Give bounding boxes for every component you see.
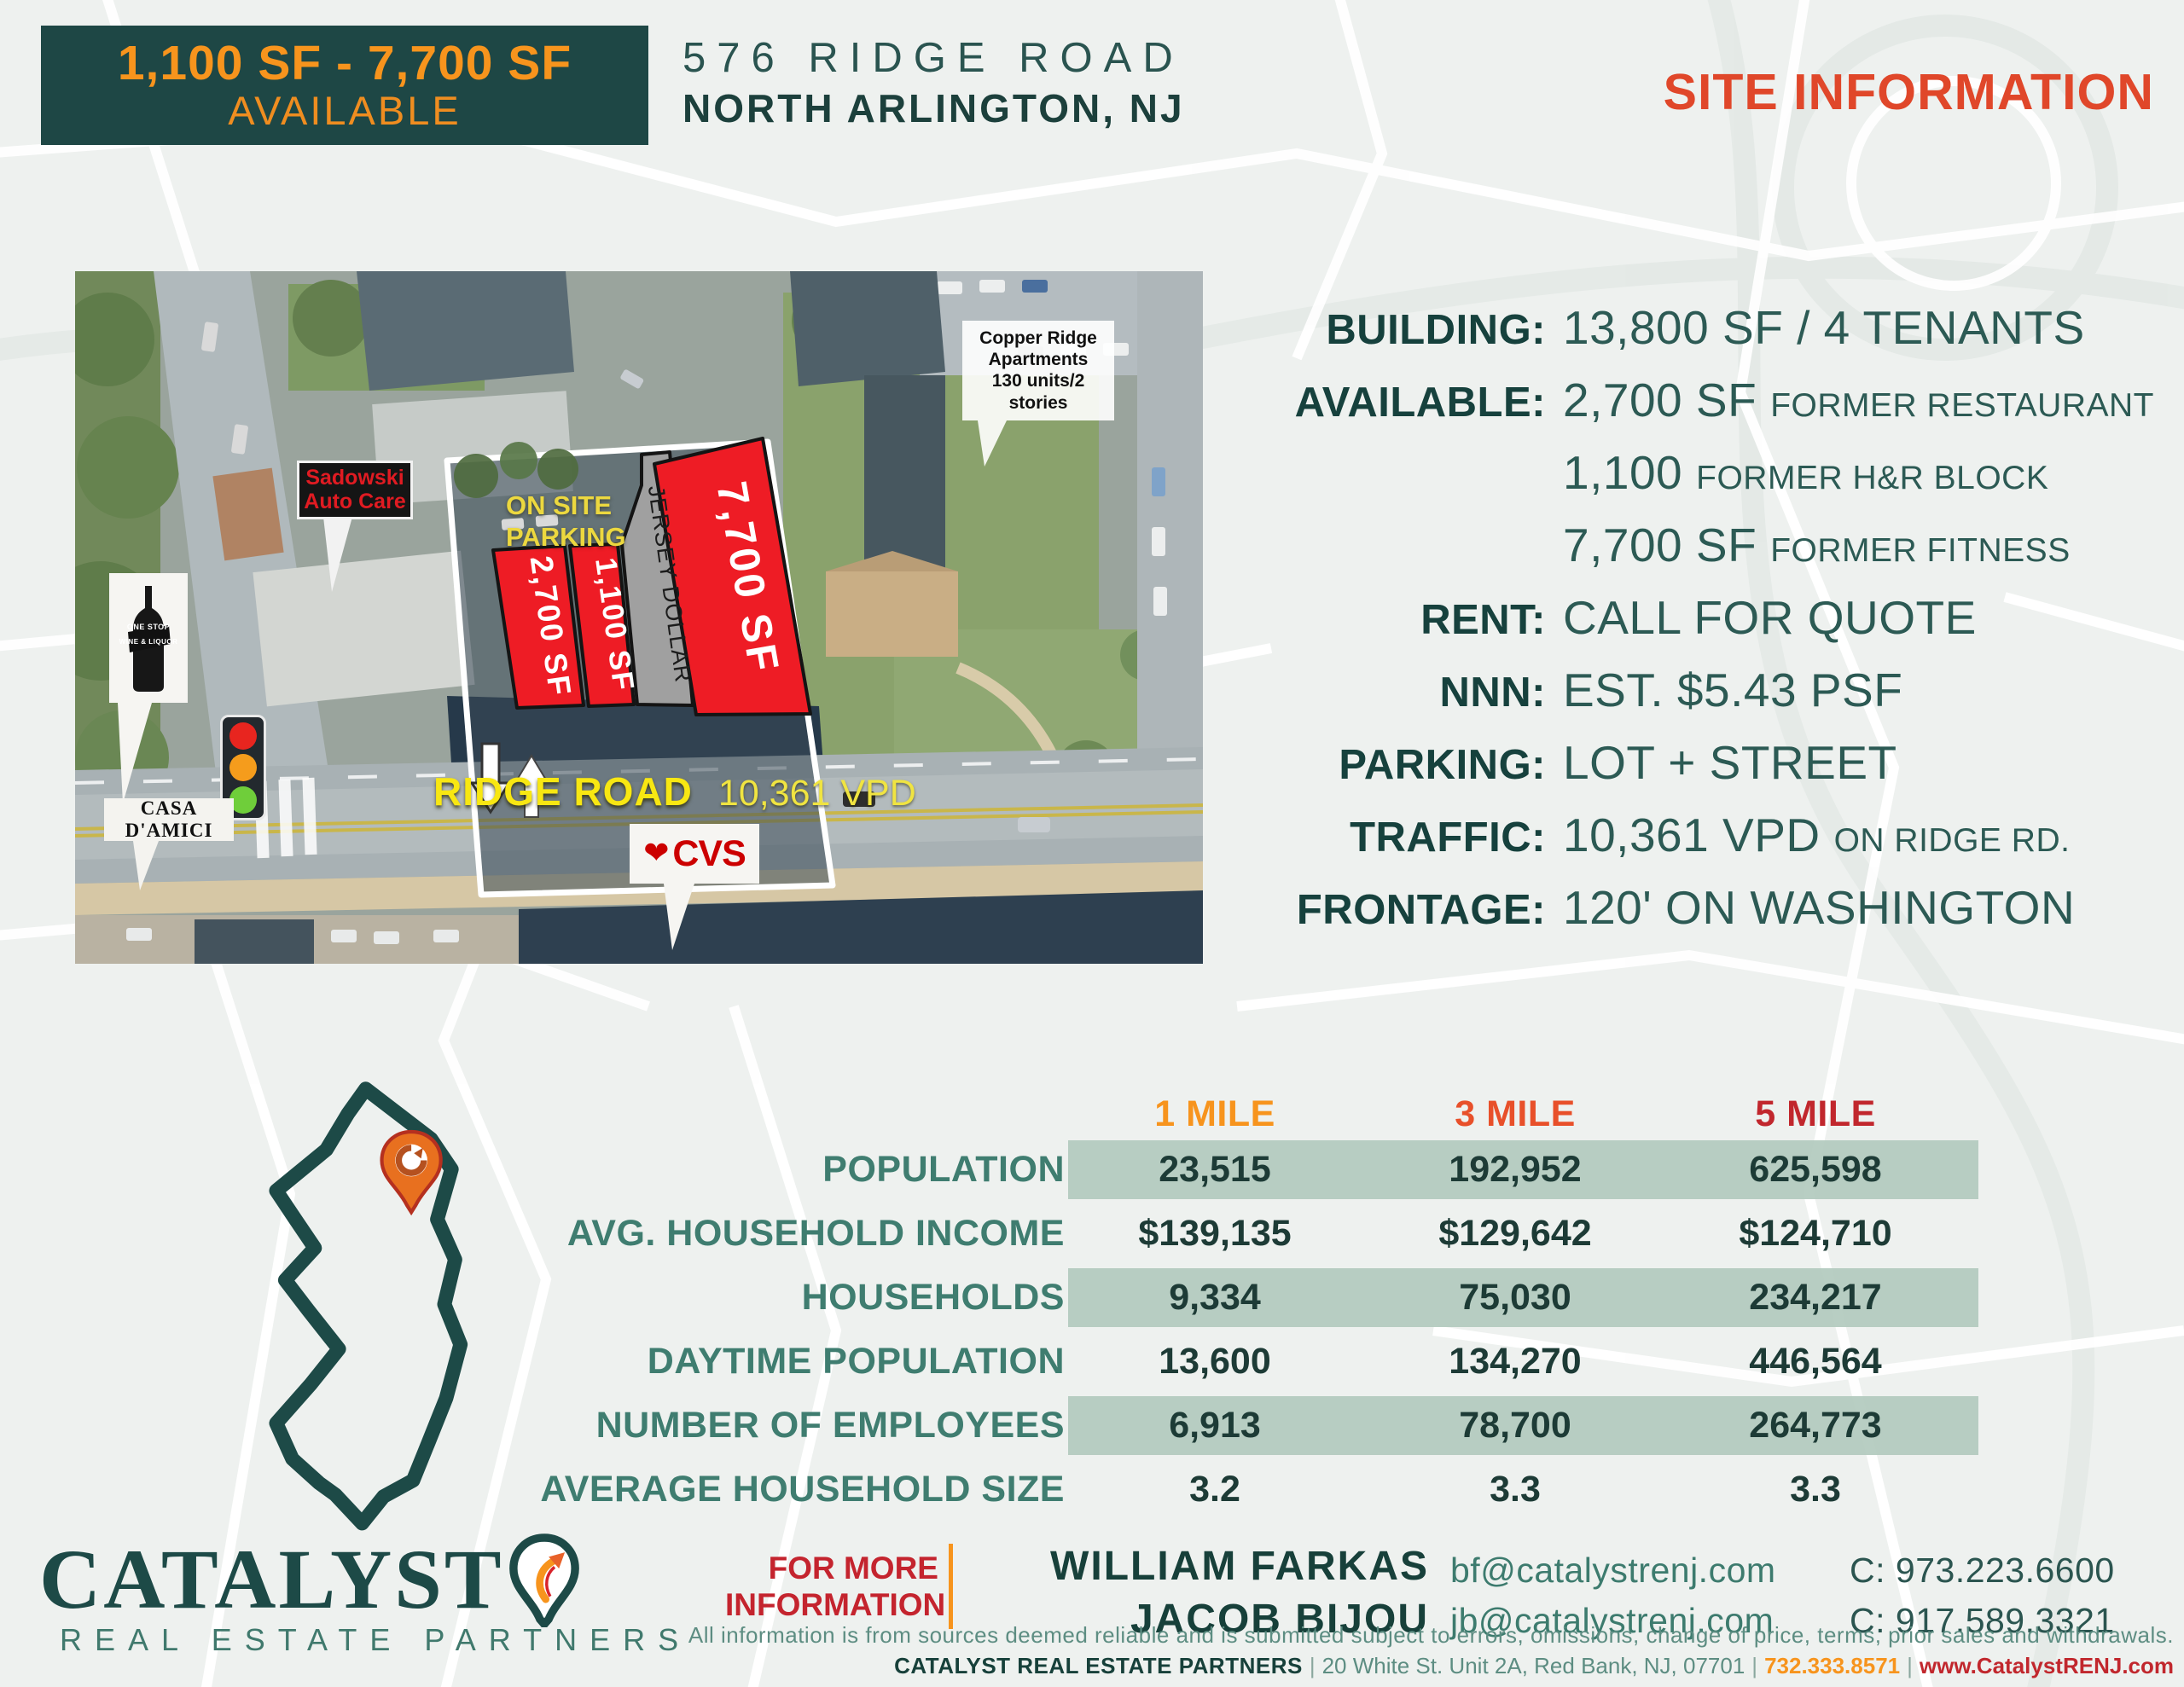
wine-shop-pointer <box>118 703 152 803</box>
cell-value: 625,598 <box>1665 1149 1966 1191</box>
cvs-heart-icon: ❤ <box>643 838 669 869</box>
availability-word: AVAILABLE <box>228 90 461 131</box>
for-more-information-label: FOR MORE INFORMATION <box>725 1551 938 1623</box>
row-suffix: FORMER RESTAURANT <box>1770 387 2154 425</box>
cell-value: $129,642 <box>1365 1213 1665 1255</box>
site-info-row: FRONTAGE: 120' ON WASHINGTON <box>1228 880 2175 953</box>
road-name: RIDGE ROAD <box>433 768 693 815</box>
footer-website[interactable]: www.CatalystRENJ.com <box>1920 1653 2174 1678</box>
location-pin-icon <box>382 1132 441 1212</box>
broker-name-farkas: WILLIAM FARKAS <box>964 1540 1429 1593</box>
footer-address: 20 White St. Unit 2A, Red Bank, NJ, 0770… <box>1322 1653 1745 1678</box>
sadowski-pointer <box>323 517 352 592</box>
row-value: 2,700 SF <box>1563 373 1757 427</box>
sadowski-line1: Sadowski <box>301 467 409 490</box>
row-suffix: FORMER H&R BLOCK <box>1696 460 2048 497</box>
sadowski-line2: Auto Care <box>301 490 409 514</box>
cell-value: 134,270 <box>1365 1341 1665 1383</box>
site-info-row: TRAFFIC: 10,361 VPD ON RIDGE RD. <box>1228 808 2175 880</box>
row-value: LOT + STREET <box>1563 735 1897 790</box>
row-label: NUMBER OF EMPLOYEES <box>512 1405 1065 1446</box>
table-row-households: HOUSEHOLDS 9,334 75,030 234,217 <box>512 1266 1966 1330</box>
row-label: AVAILABLE: <box>1228 379 1546 426</box>
footer-brand: CATALYST REAL ESTATE PARTNERS <box>894 1653 1303 1678</box>
site-info-row: 1,100 FORMER H&R BLOCK <box>1228 445 2175 518</box>
cell-value: 264,773 <box>1665 1405 1966 1446</box>
site-info-row: NNN: EST. $5.43 PSF <box>1228 663 2175 735</box>
cell-value: 75,030 <box>1365 1277 1665 1319</box>
flyer-page: 1,100 SF - 7,700 SF AVAILABLE 576 RIDGE … <box>0 0 2184 1687</box>
row-label: TRAFFIC: <box>1228 814 1546 861</box>
cell-value: 9,334 <box>1065 1277 1365 1319</box>
row-value: 10,361 VPD <box>1563 808 1821 862</box>
cell-value: 3.3 <box>1365 1469 1665 1510</box>
cvs-pointer <box>664 884 694 950</box>
row-label: NNN: <box>1228 669 1546 716</box>
row-label: HOUSEHOLDS <box>512 1277 1065 1319</box>
site-info-row: PARKING: LOT + STREET <box>1228 735 2175 808</box>
row-suffix: FORMER FITNESS <box>1770 532 2071 570</box>
wine-shop-sign: ONE STOP WINE & LIQUOR <box>109 573 188 703</box>
casa-damici-pointer <box>133 841 159 890</box>
footer-phone[interactable]: 732.333.8571 <box>1764 1653 1900 1678</box>
on-site-parking-line2: PARKING <box>506 521 626 553</box>
copper-ridge-line3: 130 units/2 stories <box>967 370 1109 413</box>
site-info-row: 7,700 SF FORMER FITNESS <box>1228 518 2175 590</box>
col-1-mile: 1 MILE <box>1065 1093 1365 1138</box>
row-label: POPULATION <box>512 1149 1065 1191</box>
cvs-label: CVS <box>672 833 745 875</box>
cell-value: 446,564 <box>1665 1341 1966 1383</box>
address-street: 576 RIDGE ROAD <box>682 34 1331 82</box>
more-info-line2: INFORMATION <box>725 1587 938 1624</box>
row-value: CALL FOR QUOTE <box>1563 590 1977 645</box>
ridge-road-label: RIDGE ROAD 10,361 VPD <box>433 768 916 815</box>
availability-banner: 1,100 SF - 7,700 SF AVAILABLE <box>41 26 648 145</box>
row-value: 7,700 SF <box>1563 518 1757 572</box>
row-value: 1,100 <box>1563 445 1682 500</box>
copper-ridge-pointer <box>978 420 1007 467</box>
phone-farkas[interactable]: C: 973.223.6600 <box>1850 1545 2115 1596</box>
row-label: FRONTAGE: <box>1228 886 1546 934</box>
cvs-sign: ❤ CVS <box>630 824 759 884</box>
sadowski-sign: Sadowski Auto Care <box>297 461 413 519</box>
aerial-site-map: 2,700 SF 1,100 SF JERSEY DOLLAR 7,700 SF… <box>75 271 1203 964</box>
property-address: 576 RIDGE ROAD NORTH ARLINGTON, NJ <box>682 34 1331 131</box>
row-value: EST. $5.43 PSF <box>1563 663 1902 717</box>
site-information-list: BUILDING: 13,800 SF / 4 TENANTS AVAILABL… <box>1228 300 2175 953</box>
site-info-row: AVAILABLE: 2,700 SF FORMER RESTAURANT <box>1228 373 2175 445</box>
row-label: DAYTIME POPULATION <box>512 1341 1065 1383</box>
cell-value: 234,217 <box>1665 1277 1966 1319</box>
copper-ridge-line2: Apartments <box>967 349 1109 370</box>
site-information-title: SITE INFORMATION <box>1604 63 2154 121</box>
row-value: 13,800 SF / 4 TENANTS <box>1563 300 2085 355</box>
footer-contact-line: CATALYST REAL ESTATE PARTNERS|20 White S… <box>0 1653 2174 1679</box>
casa-damici-sign: CASA D'AMICI <box>104 798 234 841</box>
row-suffix: ON RIDGE RD. <box>1834 822 2071 860</box>
new-jersey-outline-map <box>229 1076 553 1541</box>
copper-ridge-sign: Copper Ridge Apartments 130 units/2 stor… <box>962 321 1114 420</box>
email-farkas[interactable]: bf@catalystrenj.com <box>1450 1545 1776 1596</box>
table-row-income: AVG. HOUSEHOLD INCOME $139,135 $129,642 … <box>512 1202 1966 1266</box>
catalyst-logo: CATALYST <box>39 1532 581 1627</box>
copper-ridge-line1: Copper Ridge <box>967 328 1109 349</box>
row-label: PARKING: <box>1228 741 1546 789</box>
cell-value: $124,710 <box>1665 1213 1966 1255</box>
cell-value: 3.3 <box>1665 1469 1966 1510</box>
cell-value: 13,600 <box>1065 1341 1365 1383</box>
table-row-household-size: AVERAGE HOUSEHOLD SIZE 3.2 3.3 3.3 <box>512 1458 1966 1522</box>
demographics-table: 1 MILE 3 MILE 5 MILE POPULATION 23,515 1… <box>512 1093 1966 1522</box>
on-site-parking-label: ON SITE PARKING <box>506 490 626 553</box>
cell-value: 6,913 <box>1065 1405 1365 1446</box>
row-label: RENT: <box>1228 596 1546 644</box>
address-city: NORTH ARLINGTON, NJ <box>682 85 1331 131</box>
table-row-daytime-population: DAYTIME POPULATION 13,600 134,270 446,56… <box>512 1330 1966 1394</box>
on-site-parking-line1: ON SITE <box>506 490 626 521</box>
road-traffic-count: 10,361 VPD <box>718 773 916 815</box>
wine-shop-line1: ONE STOP <box>109 623 188 631</box>
site-info-row: BUILDING: 13,800 SF / 4 TENANTS <box>1228 300 2175 373</box>
cell-value: 192,952 <box>1365 1149 1665 1191</box>
demographics-header: 1 MILE 3 MILE 5 MILE <box>512 1093 1966 1138</box>
cell-value: 23,515 <box>1065 1149 1365 1191</box>
row-label: BUILDING: <box>1228 306 1546 354</box>
casa-damici-label: CASA D'AMICI <box>104 797 234 842</box>
col-5-mile: 5 MILE <box>1665 1093 1966 1138</box>
traffic-red-lamp <box>229 722 257 750</box>
table-row-population: POPULATION 23,515 192,952 625,598 <box>512 1138 1966 1202</box>
site-info-row: RENT: CALL FOR QUOTE <box>1228 590 2175 663</box>
row-label: AVG. HOUSEHOLD INCOME <box>512 1213 1065 1255</box>
row-value: 120' ON WASHINGTON <box>1563 880 2075 935</box>
cell-value: $139,135 <box>1065 1213 1365 1255</box>
disclaimer-text: All information is from sources deemed r… <box>0 1622 2174 1649</box>
col-3-mile: 3 MILE <box>1365 1093 1665 1138</box>
table-row-employees: NUMBER OF EMPLOYEES 6,913 78,700 264,773 <box>512 1394 1966 1458</box>
traffic-amber-lamp <box>229 754 257 781</box>
row-label: AVERAGE HOUSEHOLD SIZE <box>512 1469 1065 1510</box>
cell-value: 78,700 <box>1365 1405 1665 1446</box>
cell-value: 3.2 <box>1065 1469 1365 1510</box>
contact-divider <box>949 1544 953 1629</box>
more-info-line1: FOR MORE <box>725 1551 938 1587</box>
catalyst-pin-icon <box>508 1532 581 1627</box>
wine-shop-line2: WINE & LIQUOR <box>109 638 188 646</box>
availability-range: 1,100 SF - 7,700 SF <box>118 38 572 90</box>
catalyst-logo-wordmark: CATALYST <box>39 1537 504 1622</box>
